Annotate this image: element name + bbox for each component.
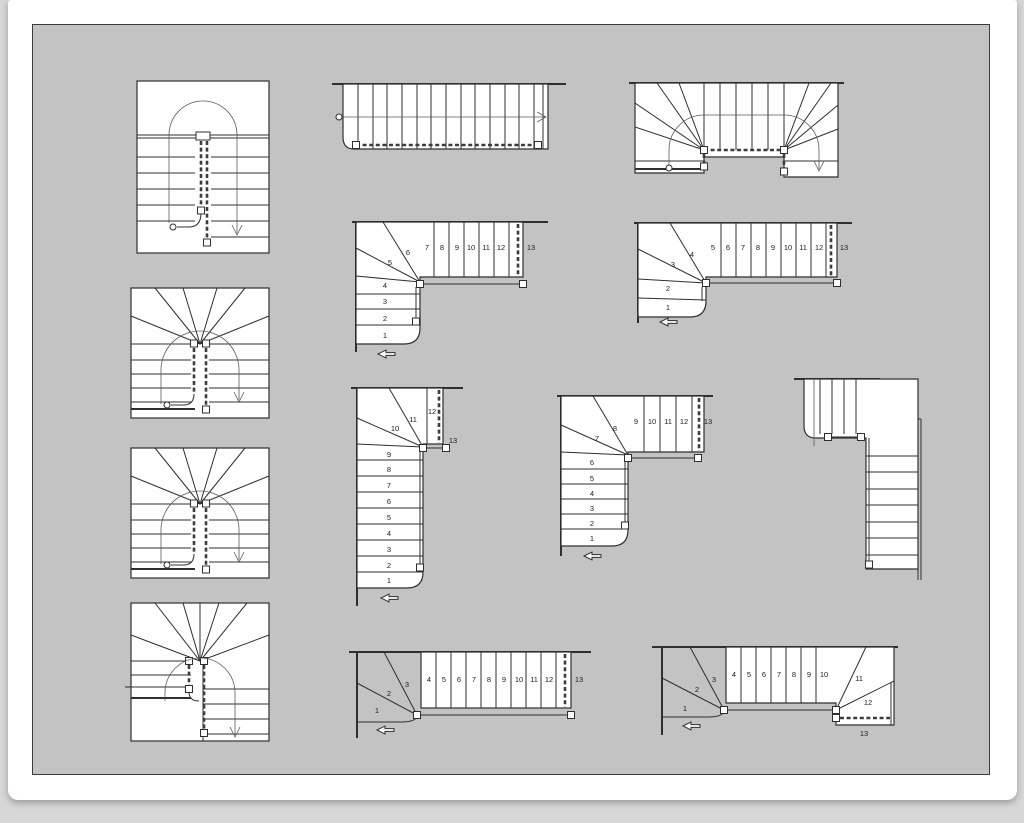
step-number: 13: [704, 417, 712, 426]
step-number: 4: [427, 675, 431, 684]
step-number: 7: [595, 434, 599, 443]
step-number: 6: [590, 458, 594, 467]
step-number: 10: [515, 675, 523, 684]
stair-plan-quarter-turn-winder-13a: 1 2 3 4 5 6 7 8 9 10 11 12 13: [352, 214, 552, 366]
step-number: 9: [634, 417, 638, 426]
direction-arrow-icon: [660, 318, 677, 326]
step-number: 2: [387, 561, 391, 570]
stair-plan-half-turn-winder-c: [125, 597, 277, 749]
step-number: 9: [502, 675, 506, 684]
step-number: 9: [387, 450, 391, 459]
step-number: 3: [712, 675, 716, 684]
step-number: 7: [777, 670, 781, 679]
step-number: 13: [449, 436, 457, 445]
step-number: 8: [613, 424, 617, 433]
stair-plan-quarter-turn-winder-13d: 1 2 3 4 5 6 7 8 9 10 11 12 13: [557, 392, 719, 574]
step-number: 1: [383, 331, 387, 340]
step-number: 6: [726, 243, 730, 252]
stair-plan-quarter-turn-winder-13b: 1 2 3 4 5 6 7 8 9 10 11 12 13: [634, 217, 856, 333]
step-number: 5: [387, 513, 391, 522]
drawing-canvas: 1 2 3 4 5 6 7 8 9 10 11 12 13 1 2 3 4 5 …: [32, 24, 990, 775]
step-number: 13: [575, 675, 583, 684]
step-number: 6: [457, 675, 461, 684]
step-number: 3: [387, 545, 391, 554]
step-number: 8: [387, 465, 391, 474]
desktop-background: { "colors": { "outer_bg": "#d7d7d7", "sh…: [0, 0, 1024, 823]
step-number: 12: [864, 698, 872, 707]
step-number: 10: [391, 424, 399, 433]
step-number: 2: [387, 689, 391, 698]
stair-plan-double-winder-13b: 1 2 3 4 5 6 7 8 9 10 11 12 13: [652, 639, 902, 749]
step-number: 12: [815, 243, 823, 252]
direction-arrow-icon: [683, 722, 700, 730]
step-number: 11: [855, 674, 863, 683]
step-number: 5: [747, 670, 751, 679]
step-number: 7: [425, 243, 429, 252]
step-number: 7: [387, 481, 391, 490]
step-number: 12: [545, 675, 553, 684]
stair-plan-straight-flight: [332, 77, 566, 177]
direction-arrow-icon: [378, 350, 395, 358]
step-number: 3: [405, 680, 409, 689]
step-number: 1: [590, 534, 594, 543]
direction-arrow-icon: [381, 594, 398, 602]
step-number: 8: [756, 243, 760, 252]
step-number: 10: [784, 243, 792, 252]
step-number: 10: [648, 417, 656, 426]
step-number: 11: [530, 675, 538, 684]
step-number: 13: [527, 243, 535, 252]
direction-arrow-icon: [584, 552, 601, 560]
stair-plan-half-turn-winder-b: [125, 442, 277, 590]
step-number: 1: [666, 303, 670, 312]
step-number: 11: [799, 243, 807, 252]
step-number: 2: [383, 314, 387, 323]
stair-plan-double-winder: [629, 77, 844, 195]
stair-plan-half-turn-winder-a: [125, 282, 277, 430]
step-number: 2: [666, 284, 670, 293]
step-number: 12: [497, 243, 505, 252]
step-number: 1: [375, 706, 379, 715]
step-number: 4: [732, 670, 736, 679]
step-number: 13: [840, 243, 848, 252]
step-number: 4: [590, 489, 594, 498]
step-number: 9: [771, 243, 775, 252]
step-number: 13: [860, 729, 868, 738]
step-number: 8: [487, 675, 491, 684]
stair-plan-quarter-turn-landing: [794, 372, 928, 592]
step-number: 10: [467, 243, 475, 252]
direction-arrow-icon: [377, 726, 394, 734]
step-number: 1: [683, 704, 687, 713]
step-number: 7: [741, 243, 745, 252]
step-number: 9: [807, 670, 811, 679]
step-number: 11: [664, 417, 672, 426]
stair-plan-half-turn-landing: [131, 75, 276, 267]
step-number: 6: [387, 497, 391, 506]
stair-plan-winder-start-13a: 1 2 3 4 5 6 7 8 9 10 11 12 13: [349, 644, 597, 746]
step-number: 9: [455, 243, 459, 252]
step-number: 2: [590, 519, 594, 528]
step-number: 3: [671, 260, 675, 269]
step-number: 12: [428, 407, 436, 416]
step-number: 2: [695, 685, 699, 694]
step-number: 6: [406, 248, 410, 257]
step-number: 3: [590, 504, 594, 513]
step-number: 7: [472, 675, 476, 684]
step-number: 3: [383, 297, 387, 306]
step-number: 11: [409, 415, 417, 424]
step-number: 1: [387, 576, 391, 585]
step-number: 8: [792, 670, 796, 679]
step-number: 10: [820, 670, 828, 679]
step-number: 4: [690, 250, 694, 259]
step-number: 5: [388, 258, 392, 267]
step-number: 5: [590, 474, 594, 483]
step-number: 8: [440, 243, 444, 252]
step-number: 12: [680, 417, 688, 426]
step-number: 11: [482, 243, 490, 252]
step-number: 5: [442, 675, 446, 684]
drawing-sheet: 1 2 3 4 5 6 7 8 9 10 11 12 13 1 2 3 4 5 …: [8, 0, 1017, 800]
stair-plan-quarter-turn-winder-13c: 1 2 3 4 5 6 7 8 9 10 11 12 13: [351, 382, 471, 614]
step-number: 4: [383, 281, 387, 290]
step-number: 5: [711, 243, 715, 252]
step-number: 6: [762, 670, 766, 679]
step-number: 4: [387, 529, 391, 538]
